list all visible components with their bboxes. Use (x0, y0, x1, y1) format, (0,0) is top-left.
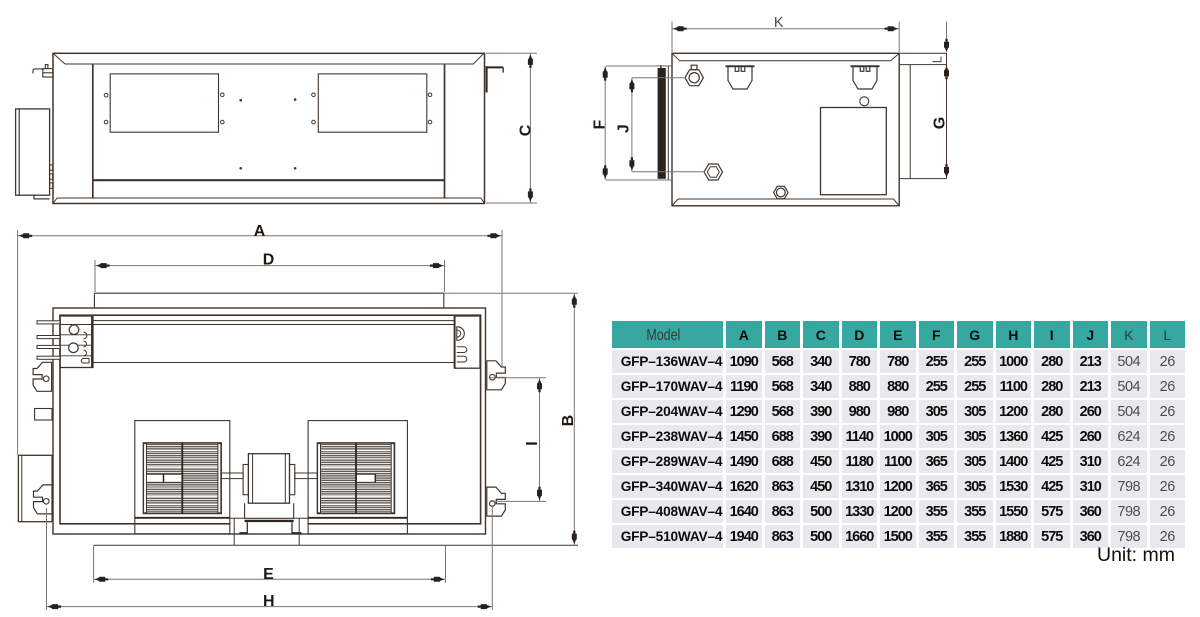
svg-text:K: K (774, 15, 784, 31)
svg-text:E: E (263, 566, 274, 583)
svg-text:A: A (254, 223, 266, 240)
svg-text:J: J (615, 124, 632, 133)
svg-text:G: G (931, 117, 948, 129)
svg-text:L: L (930, 56, 945, 63)
svg-text:F: F (592, 119, 609, 129)
svg-text:C: C (518, 124, 535, 136)
svg-text:B: B (560, 415, 577, 427)
svg-text:I: I (524, 441, 541, 445)
svg-text:D: D (263, 252, 275, 269)
svg-text:H: H (263, 593, 275, 610)
